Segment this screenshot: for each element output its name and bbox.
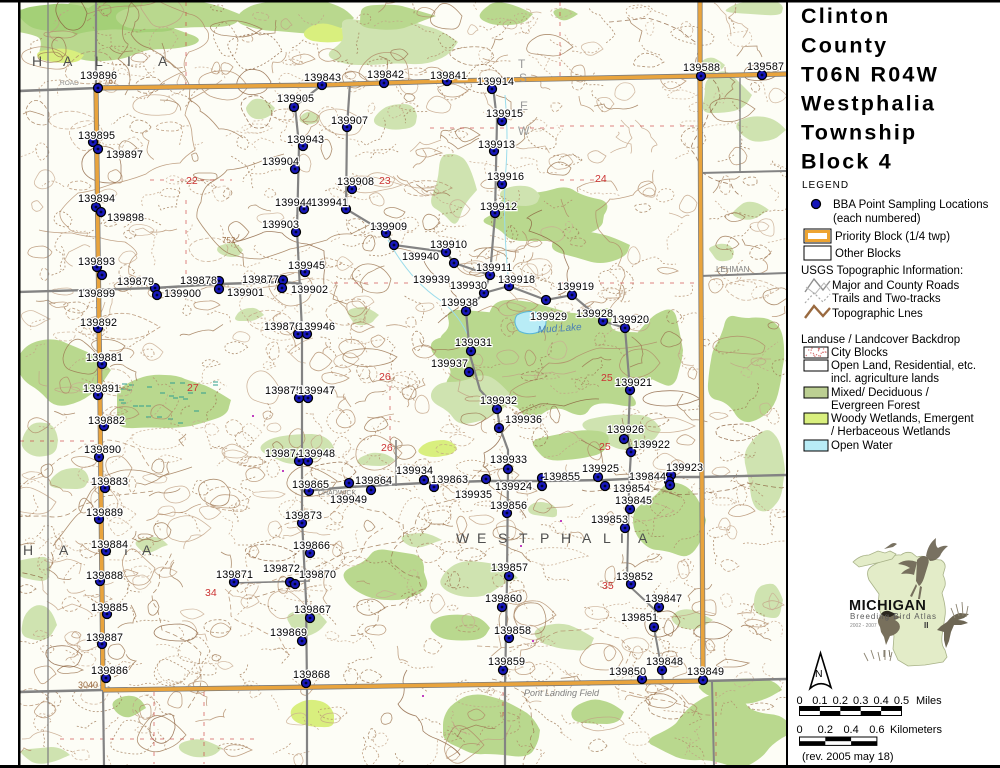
svg-text:139876: 139876 xyxy=(264,321,301,333)
svg-text:/ Herbaceous Wetlands: / Herbaceous Wetlands xyxy=(831,426,951,438)
svg-text:0.2: 0.2 xyxy=(818,724,833,736)
svg-text:139844: 139844 xyxy=(629,471,666,483)
svg-text:0.3: 0.3 xyxy=(853,695,868,707)
svg-text:139874: 139874 xyxy=(265,448,302,460)
svg-text:139867: 139867 xyxy=(294,604,331,616)
svg-text:139903: 139903 xyxy=(262,219,299,231)
svg-text:0.4: 0.4 xyxy=(843,724,858,736)
svg-text:139860: 139860 xyxy=(485,593,522,605)
svg-text:139945: 139945 xyxy=(288,260,325,272)
svg-text:139930: 139930 xyxy=(450,280,487,292)
svg-text:139920: 139920 xyxy=(612,314,649,326)
svg-text:incl. agriculture lands: incl. agriculture lands xyxy=(831,373,939,385)
svg-text:A: A xyxy=(638,530,648,546)
svg-text:139858: 139858 xyxy=(494,625,531,637)
svg-text:139902: 139902 xyxy=(291,284,328,296)
svg-text:139901: 139901 xyxy=(227,287,264,299)
svg-text:A: A xyxy=(63,53,73,69)
svg-text:139852: 139852 xyxy=(616,571,653,583)
svg-text:0: 0 xyxy=(796,724,802,736)
svg-text:County: County xyxy=(801,34,888,58)
svg-text:139878: 139878 xyxy=(180,275,217,287)
svg-text:139938: 139938 xyxy=(441,297,478,309)
svg-text:LEHMAN: LEHMAN xyxy=(716,265,750,274)
svg-text:139849: 139849 xyxy=(687,666,724,678)
svg-text:139897: 139897 xyxy=(106,149,143,161)
svg-text:H: H xyxy=(561,530,571,546)
svg-text:Open Land, Residential, etc.: Open Land, Residential, etc. xyxy=(831,360,976,372)
svg-text:139865: 139865 xyxy=(292,479,329,491)
svg-text:S: S xyxy=(519,71,527,85)
svg-text:139928: 139928 xyxy=(576,308,613,320)
svg-text:25: 25 xyxy=(601,372,613,384)
svg-text:3040: 3040 xyxy=(78,680,98,690)
svg-text:139926: 139926 xyxy=(607,424,644,436)
svg-text:139947: 139947 xyxy=(298,385,335,397)
svg-text:23: 23 xyxy=(379,175,391,187)
svg-text:Township: Township xyxy=(801,121,917,145)
svg-text:139915: 139915 xyxy=(486,108,523,120)
svg-text:L: L xyxy=(603,530,611,546)
svg-text:Landuse / Landcover Backdrop: Landuse / Landcover Backdrop xyxy=(801,334,960,346)
svg-text:139892: 139892 xyxy=(80,317,117,329)
svg-text:Miles: Miles xyxy=(916,695,942,707)
svg-text:35: 35 xyxy=(602,580,614,592)
svg-text:139872: 139872 xyxy=(263,563,300,575)
svg-text:139853: 139853 xyxy=(591,514,628,526)
svg-text:139842: 139842 xyxy=(367,69,404,81)
svg-text:139875: 139875 xyxy=(265,385,302,397)
svg-text:W: W xyxy=(518,124,530,138)
svg-text:139863: 139863 xyxy=(431,474,468,486)
svg-text:City Blocks: City Blocks xyxy=(831,347,888,359)
svg-text:139890: 139890 xyxy=(84,444,121,456)
svg-text:(rev. 2005 may 18): (rev. 2005 may 18) xyxy=(802,751,894,763)
svg-text:139933: 139933 xyxy=(490,454,527,466)
svg-text:Block 4: Block 4 xyxy=(801,150,893,174)
svg-text:Evergreen Forest: Evergreen Forest xyxy=(831,400,921,412)
svg-text:139857: 139857 xyxy=(491,562,528,574)
svg-text:139916: 139916 xyxy=(487,171,524,183)
svg-text:139900: 139900 xyxy=(164,288,201,300)
svg-text:22: 22 xyxy=(186,175,198,187)
svg-text:II: II xyxy=(924,621,928,630)
svg-text:139943: 139943 xyxy=(287,134,324,146)
svg-text:139935: 139935 xyxy=(455,489,492,501)
svg-text:139877: 139877 xyxy=(242,274,279,286)
svg-text:139941: 139941 xyxy=(311,197,348,209)
svg-text:139899: 139899 xyxy=(78,288,115,300)
svg-text:Topographic Lnes: Topographic Lnes xyxy=(832,308,923,320)
svg-text:26: 26 xyxy=(379,371,391,383)
svg-text:Open Water: Open Water xyxy=(831,440,893,452)
svg-text:139907: 139907 xyxy=(331,115,368,127)
svg-text:139919: 139919 xyxy=(557,281,594,293)
svg-text:139905: 139905 xyxy=(277,93,314,105)
svg-text:0.6: 0.6 xyxy=(869,724,884,736)
svg-text:139859: 139859 xyxy=(488,656,525,668)
svg-text:139940: 139940 xyxy=(402,251,439,263)
svg-text:139946: 139946 xyxy=(298,321,335,333)
svg-text:139854: 139854 xyxy=(613,483,650,495)
svg-text:139891: 139891 xyxy=(83,383,120,395)
svg-text:L: L xyxy=(95,53,103,69)
svg-text:Trails and Two-tracks: Trails and Two-tracks xyxy=(832,293,941,305)
svg-text:139848: 139848 xyxy=(646,656,683,668)
svg-text:139909: 139909 xyxy=(370,221,407,233)
svg-text:139929: 139929 xyxy=(530,311,567,323)
svg-text:ROAD: ROAD xyxy=(60,80,79,87)
svg-text:139845: 139845 xyxy=(615,495,652,507)
svg-text:E: E xyxy=(477,530,486,546)
svg-text:BBA Point Sampling Locations: BBA Point Sampling Locations xyxy=(833,199,989,211)
svg-text:A: A xyxy=(158,53,168,69)
svg-text:139851: 139851 xyxy=(621,612,658,624)
svg-text:Major and County Roads: Major and County Roads xyxy=(832,280,959,292)
svg-text:139896: 139896 xyxy=(80,70,117,82)
svg-text:139843: 139843 xyxy=(304,72,341,84)
svg-text:139886: 139886 xyxy=(91,665,128,677)
svg-text:Woody Wetlands, Emergent: Woody Wetlands, Emergent xyxy=(831,413,975,425)
svg-text:139881: 139881 xyxy=(86,352,123,364)
svg-text:H: H xyxy=(32,53,42,69)
svg-text:139841: 139841 xyxy=(430,70,467,82)
svg-text:139934: 139934 xyxy=(396,465,433,477)
svg-text:Kilometers: Kilometers xyxy=(890,724,942,736)
svg-text:34: 34 xyxy=(205,587,217,599)
svg-text:Breeding Bird Atlas: Breeding Bird Atlas xyxy=(850,612,937,621)
svg-text:A: A xyxy=(582,530,592,546)
svg-text:139937: 139937 xyxy=(431,358,468,370)
svg-text:A: A xyxy=(59,542,69,558)
svg-text:I: I xyxy=(127,53,131,69)
svg-text:139913: 139913 xyxy=(478,139,515,151)
svg-text:139894: 139894 xyxy=(78,193,115,205)
svg-text:W: W xyxy=(456,530,470,546)
svg-text:T: T xyxy=(518,57,526,71)
svg-text:Other Blocks: Other Blocks xyxy=(835,248,901,260)
svg-text:A: A xyxy=(142,542,152,558)
svg-text:USGS Topographic Information:: USGS Topographic Information: xyxy=(801,265,963,277)
svg-text:LEGEND: LEGEND xyxy=(802,180,849,191)
svg-text:N: N xyxy=(815,668,823,680)
svg-text:139866: 139866 xyxy=(293,540,330,552)
svg-text:139864: 139864 xyxy=(355,475,392,487)
svg-text:S: S xyxy=(498,530,507,546)
svg-text:H: H xyxy=(23,542,33,558)
svg-text:(each numbered): (each numbered) xyxy=(833,213,921,225)
svg-text:139948: 139948 xyxy=(298,448,335,460)
svg-text:752: 752 xyxy=(222,236,236,245)
svg-text:139939: 139939 xyxy=(413,274,450,286)
svg-text:139949: 139949 xyxy=(330,494,367,506)
svg-text:139847: 139847 xyxy=(645,593,682,605)
svg-text:27: 27 xyxy=(187,382,199,394)
svg-text:139921: 139921 xyxy=(615,377,652,389)
svg-text:26: 26 xyxy=(381,442,393,454)
svg-text:25: 25 xyxy=(599,441,611,453)
svg-text:139587: 139587 xyxy=(747,61,784,73)
svg-text:2002 - 2007: 2002 - 2007 xyxy=(850,623,877,629)
svg-text:Mixed/ Deciduous /: Mixed/ Deciduous / xyxy=(831,387,930,399)
svg-text:139873: 139873 xyxy=(285,510,322,522)
svg-text:139918: 139918 xyxy=(498,274,535,286)
svg-text:Clinton: Clinton xyxy=(801,4,890,28)
svg-text:139588: 139588 xyxy=(683,62,720,74)
svg-text:139855: 139855 xyxy=(543,471,580,483)
svg-text:139883: 139883 xyxy=(91,476,128,488)
svg-text:139868: 139868 xyxy=(293,669,330,681)
svg-text:Pont Landing Field: Pont Landing Field xyxy=(524,688,600,698)
svg-text:0: 0 xyxy=(796,695,802,707)
svg-text:139879: 139879 xyxy=(117,276,154,288)
svg-text:139911: 139911 xyxy=(476,262,512,274)
svg-text:139869: 139869 xyxy=(270,627,307,639)
svg-text:139908: 139908 xyxy=(337,176,374,188)
svg-text:0.1: 0.1 xyxy=(812,695,827,707)
svg-text:139924: 139924 xyxy=(495,481,532,493)
svg-text:139904: 139904 xyxy=(262,156,299,168)
svg-text:139888: 139888 xyxy=(86,570,123,582)
svg-text:24: 24 xyxy=(595,173,607,185)
svg-text:139885: 139885 xyxy=(91,602,128,614)
svg-text:139912: 139912 xyxy=(480,201,517,213)
svg-text:0.5: 0.5 xyxy=(894,695,909,707)
svg-text:T: T xyxy=(519,530,528,546)
svg-text:139850: 139850 xyxy=(609,666,646,678)
svg-text:139914: 139914 xyxy=(477,76,514,88)
svg-text:139871: 139871 xyxy=(216,569,253,581)
svg-text:139895: 139895 xyxy=(78,130,115,142)
svg-text:139893: 139893 xyxy=(78,256,115,268)
svg-text:139884: 139884 xyxy=(91,539,128,551)
svg-text:P: P xyxy=(540,530,549,546)
svg-text:139887: 139887 xyxy=(86,632,123,644)
svg-text:139923: 139923 xyxy=(666,462,703,474)
svg-text:139889: 139889 xyxy=(86,507,123,519)
svg-text:139910: 139910 xyxy=(430,239,467,251)
svg-text:Priority Block (1/4 twp): Priority Block (1/4 twp) xyxy=(835,231,950,243)
svg-text:T06N R04W: T06N R04W xyxy=(801,63,939,87)
svg-text:0.4: 0.4 xyxy=(873,695,888,707)
svg-text:139925: 139925 xyxy=(582,463,619,475)
svg-text:139922: 139922 xyxy=(633,439,670,451)
svg-text:139898: 139898 xyxy=(107,212,144,224)
svg-text:139931: 139931 xyxy=(455,337,492,349)
svg-text:139936: 139936 xyxy=(505,414,542,426)
svg-text:139932: 139932 xyxy=(480,395,517,407)
svg-text:139944: 139944 xyxy=(275,197,312,209)
svg-text:0.2: 0.2 xyxy=(833,695,848,707)
svg-text:Westphalia: Westphalia xyxy=(801,92,936,116)
svg-text:139882: 139882 xyxy=(88,415,125,427)
svg-text:139856: 139856 xyxy=(490,500,527,512)
svg-text:139870: 139870 xyxy=(299,569,336,581)
